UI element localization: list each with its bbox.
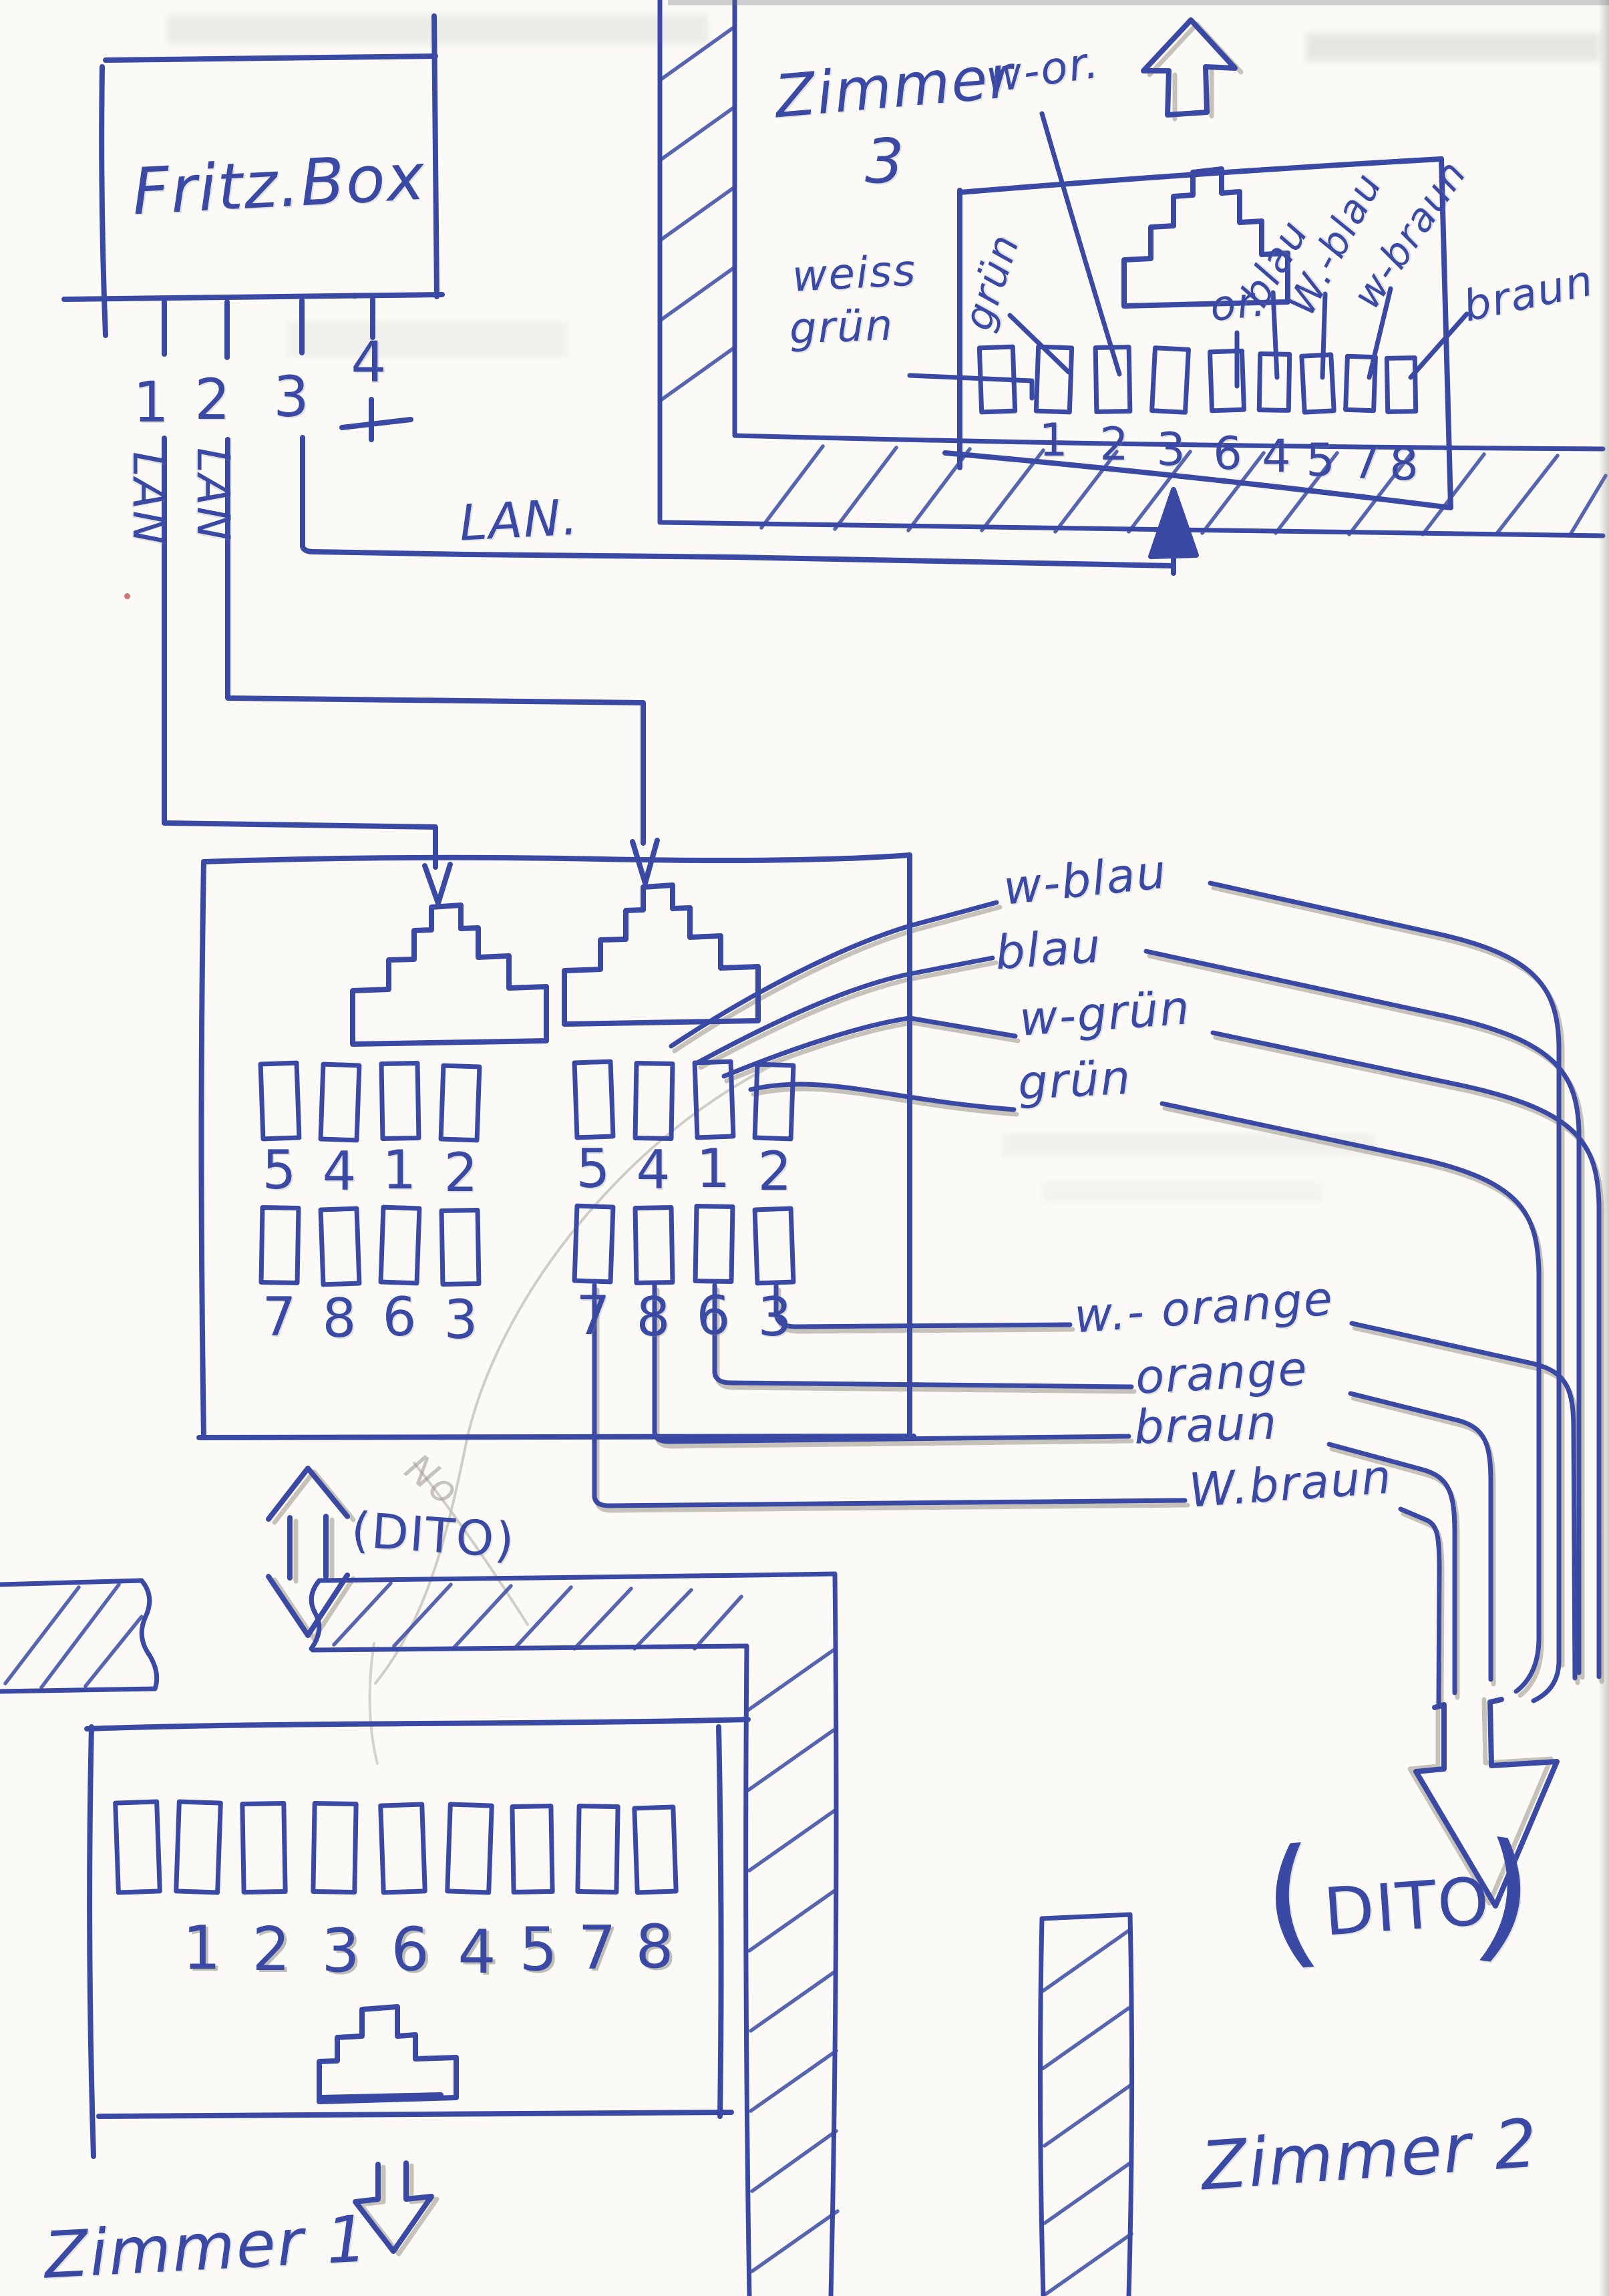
wall-hatching [1043, 1931, 1131, 2294]
distributor-rj45-plug-left-icon [353, 905, 546, 1044]
lan-line-port2 [228, 440, 657, 883]
pin-number: 1 [1039, 418, 1067, 464]
rj45-pin [578, 1806, 618, 1893]
pin-number: 8 [637, 1291, 671, 1344]
wall-bottom-right [1040, 1915, 1131, 2296]
pin-number: 2 [252, 1920, 290, 1980]
wire-label-w-gruen: w-grün [1018, 984, 1192, 1043]
wire-label-orange: orange [1134, 1345, 1309, 1400]
pin-number: 3 [1156, 428, 1185, 473]
rj45-pin [635, 1063, 673, 1139]
dito-right-label: DITO [1322, 1868, 1493, 1945]
wall-hatching [5, 1585, 142, 1687]
rj45-pin [1302, 355, 1334, 412]
pin-number: 3 [758, 1291, 792, 1344]
pin-number: 6 [697, 1289, 731, 1343]
zimmer3-pins [979, 347, 1415, 412]
pin-number: 1 [383, 1144, 417, 1197]
fritzbox-port-number: 1 [133, 374, 168, 430]
pin-number: 1 [697, 1142, 731, 1196]
pin-number: 2 [444, 1146, 478, 1200]
pin-number: 4 [637, 1144, 671, 1197]
distributor-box [199, 855, 914, 1438]
lan-label-vertical: LAN [126, 452, 171, 546]
rj45-pin [755, 1208, 793, 1283]
lan-label-horizontal: LAN. [458, 492, 580, 548]
wire-label-gruen: grün [789, 304, 894, 350]
fritzbox-label: Fritz.Box [131, 145, 427, 224]
rj45-pin [321, 1208, 359, 1285]
pin-number: 3 [321, 1921, 359, 1981]
rj45-pin [261, 1208, 299, 1283]
distributor-rj45-plug-right-icon [564, 885, 758, 1024]
rj45-pin [441, 1210, 479, 1285]
rj45-pin [448, 1804, 492, 1893]
rj45-pin [381, 1063, 419, 1139]
lan-label-vertical: LAN [190, 448, 235, 542]
arrow-up-solid-icon [1151, 490, 1196, 556]
pin-number: 5 [519, 1920, 557, 1980]
rj45-pin [242, 1803, 285, 1892]
zimmer1-pins [116, 1802, 677, 1893]
zimmer1-title: Zimmer 1 [43, 2206, 370, 2287]
scan-edge-shadow [668, 0, 1609, 5]
zimmer3-title-number: 3 [865, 131, 906, 192]
pin-number: 3 [444, 1293, 478, 1347]
pin-number: 8 [1389, 442, 1418, 488]
dito-left-label: (DITO) [350, 1506, 517, 1565]
rj45-pin [635, 1208, 673, 1283]
rj45-pin [1152, 348, 1189, 412]
rj45-pin [574, 1061, 613, 1138]
pin-number: 4 [458, 1923, 496, 1983]
rj45-pin [116, 1802, 160, 1893]
rj45-pin [321, 1064, 359, 1140]
wire-label-blau: blau [994, 923, 1103, 977]
pin-number: 7 [1351, 441, 1380, 486]
pin-number: 5 [262, 1144, 297, 1197]
rj45-pin [755, 1064, 793, 1139]
rj45-pin [381, 1207, 419, 1283]
pin-number: 8 [635, 1917, 673, 1977]
fritzbox-port-number: 3 [273, 369, 309, 425]
pin-number: 7 [262, 1291, 297, 1344]
pin-number: 6 [1213, 432, 1242, 477]
pin-number: 1 [182, 1919, 220, 1979]
rj45-pin [635, 1807, 676, 1893]
wire-label-gruen: grün [1017, 1054, 1132, 1107]
lan-lines [164, 438, 1196, 903]
wire-label-w-braun: W.braun [1188, 1453, 1394, 1514]
fritzbox-port-number: 2 [194, 371, 230, 428]
fritzbox-port-number: 4 [351, 334, 386, 390]
double-arrow-icon [269, 1468, 347, 1635]
zimmer1-rj45-plug-icon [319, 2007, 456, 2102]
wire-label-weiss: weiss [791, 249, 917, 299]
rj45-pin [512, 1806, 552, 1893]
pin-number: 7 [576, 1289, 610, 1343]
rj45-pin [695, 1206, 733, 1282]
rj45-pin [1387, 358, 1415, 412]
rj45-pin [260, 1063, 299, 1139]
rj45-pin [441, 1065, 480, 1140]
pin-number: 2 [758, 1145, 792, 1198]
pin-number: 2 [1099, 422, 1128, 468]
scan-edge-shadow [1598, 0, 1609, 2296]
pin-number: 7 [578, 1919, 616, 1979]
pin-number: 4 [323, 1145, 357, 1198]
port4-underline [342, 420, 411, 428]
rj45-pin [381, 1804, 425, 1893]
pin-number: 5 [576, 1142, 610, 1196]
pin-number: 6 [383, 1291, 417, 1344]
rj45-pin [176, 1802, 221, 1893]
pin-number: 6 [391, 1920, 429, 1980]
wire-label-braun: braun [1133, 1399, 1278, 1450]
rj45-pin [313, 1803, 356, 1892]
pin-number: 8 [323, 1292, 357, 1345]
pin-number: 5 [1306, 438, 1334, 484]
scanned-sketch-page: Fritz.Box 1 2 3 4 LAN LAN LAN. Zimmer 3 … [0, 0, 1609, 2296]
rj45-pin [574, 1206, 613, 1282]
pin-number: 4 [1262, 434, 1290, 480]
